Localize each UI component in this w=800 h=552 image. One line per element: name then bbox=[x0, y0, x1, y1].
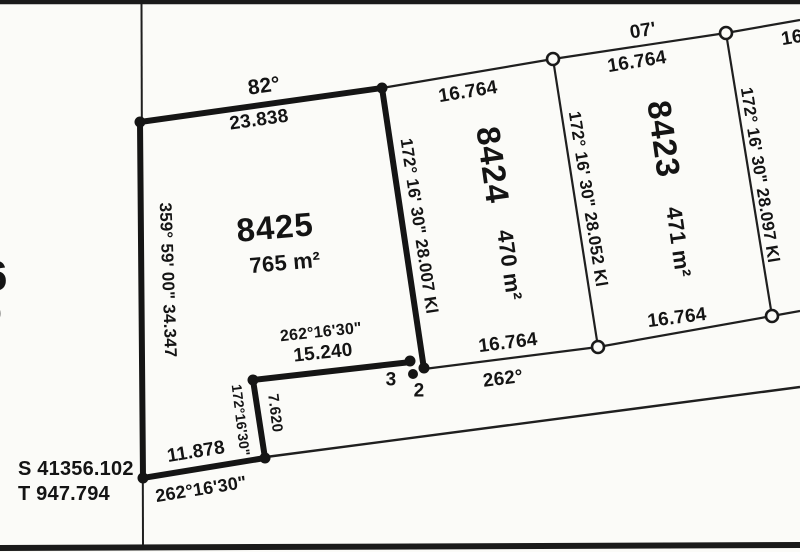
point-2-label: 2 bbox=[414, 382, 425, 401]
block-top-line bbox=[382, 20, 800, 88]
survey-plan: 8425 765 m² 8424 470 m² 8423 471 m² 82° … bbox=[0, 0, 800, 552]
sheet-bottom-border bbox=[0, 545, 800, 548]
road-line bbox=[266, 387, 800, 457]
parcel-8425-id: 8425 bbox=[235, 207, 315, 247]
distance-step-side: 7.620 bbox=[265, 393, 285, 433]
reference-s-value: S 41356.102 bbox=[18, 459, 134, 479]
point-3-label: 3 bbox=[386, 371, 397, 390]
edge-cut-text-small: 0 bbox=[0, 303, 2, 327]
bearing-top-8423-partial: 07' bbox=[629, 20, 658, 43]
bearing-front-8424: 262° bbox=[482, 367, 524, 391]
bearing-top-8425: 82° bbox=[247, 73, 282, 98]
distance-top-right-partial: 16 bbox=[780, 27, 800, 49]
edge-cut-text-big: 6 bbox=[0, 255, 8, 297]
reference-t-value: T 947.794 bbox=[18, 484, 110, 504]
